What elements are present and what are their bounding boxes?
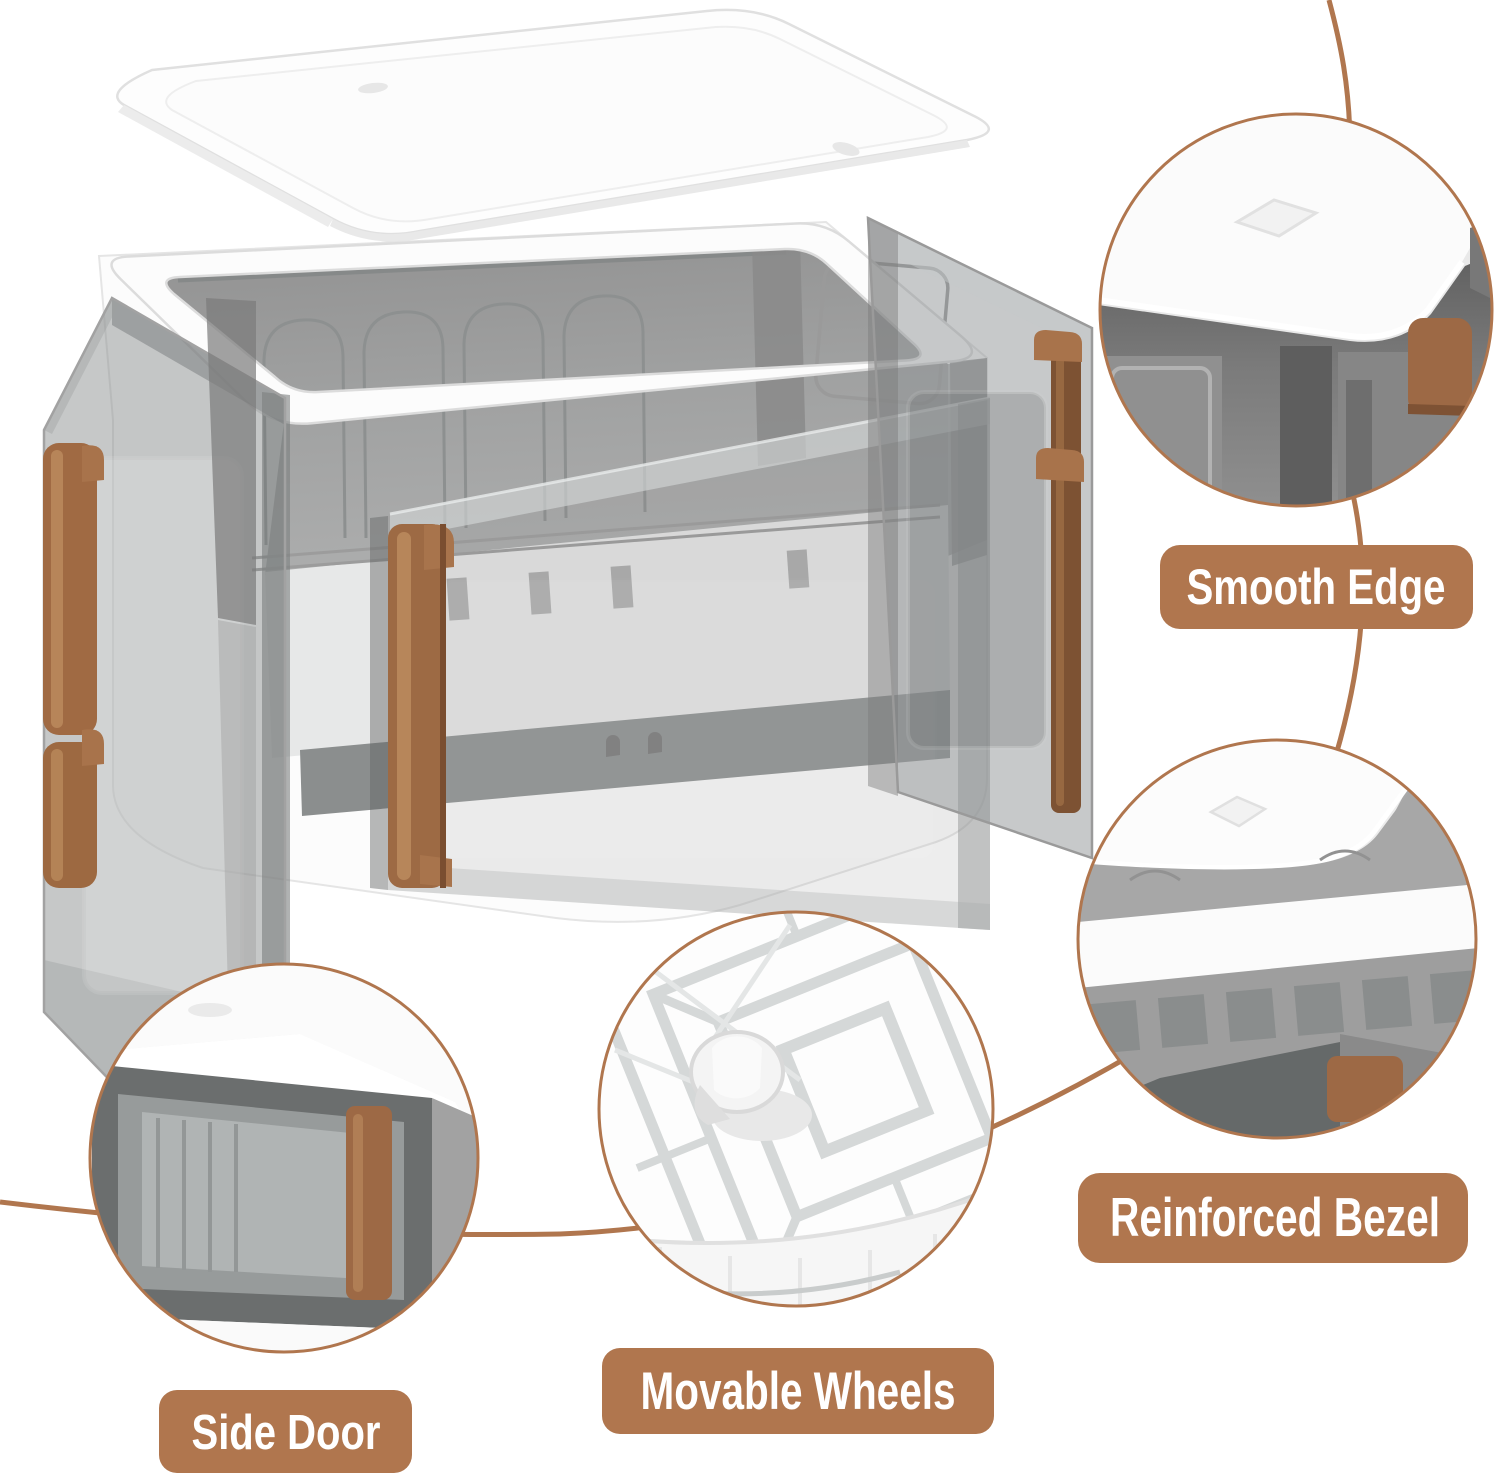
svg-text:Movable Wheels: Movable Wheels <box>641 1362 956 1421</box>
svg-text:Side Door: Side Door <box>192 1406 381 1460</box>
svg-text:Reinforced Bezel: Reinforced Bezel <box>1110 1186 1440 1248</box>
svg-text:Smooth Edge: Smooth Edge <box>1187 559 1446 615</box>
